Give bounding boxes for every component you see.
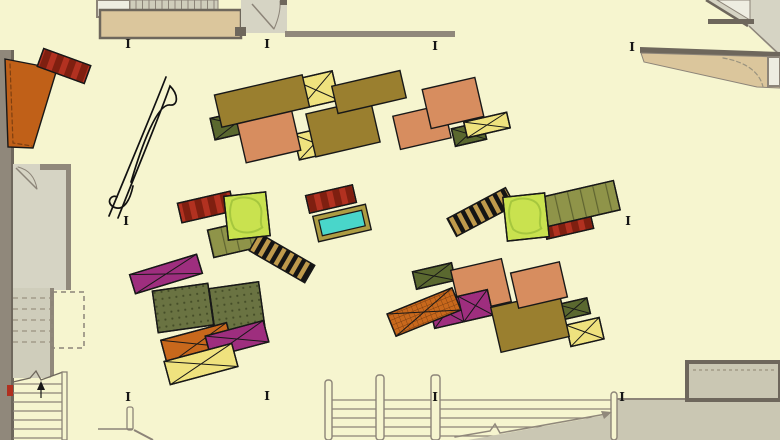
balustrade-1 — [325, 380, 332, 440]
yellow-crate-e[interactable] — [566, 317, 604, 346]
wall-stub-top-b — [280, 0, 287, 5]
stair-rail-left — [62, 372, 67, 440]
floor-plan-canvas: IIIIIIIIII — [0, 0, 780, 440]
section-marker: I — [629, 40, 635, 54]
green-crate-c[interactable] — [412, 263, 455, 290]
section-marker: I — [619, 390, 625, 404]
floor-plan: IIIIIIIIII — [0, 0, 780, 440]
sketch-stroke — [118, 86, 176, 218]
stripe-walk-a[interactable] — [249, 233, 314, 282]
pen-sketch — [109, 77, 176, 218]
section-marker: I — [625, 214, 631, 228]
wall-stub-top-a — [235, 27, 246, 36]
elevator-box-right — [768, 57, 780, 86]
up-arrow-head — [37, 381, 45, 390]
section-marker: I — [125, 390, 131, 404]
diag-line-bottomleft — [134, 430, 153, 440]
red-accent-wall — [7, 385, 13, 396]
section-marker: I — [125, 37, 131, 51]
solid-treads-left — [13, 384, 63, 438]
hatch-orange-crate[interactable] — [387, 288, 461, 336]
olive-table-c[interactable] — [332, 70, 407, 113]
section-marker: I — [432, 39, 438, 53]
dotted-green-a[interactable] — [152, 283, 213, 332]
wall-bar-topright — [708, 19, 754, 24]
lower-slab — [468, 399, 780, 440]
post-bottomleft — [127, 407, 133, 430]
stair-room-lower-left — [13, 288, 51, 378]
room-bottomright — [687, 362, 780, 400]
section-marker: I — [264, 37, 270, 51]
furniture-layer — [5, 49, 620, 385]
dashed-outline — [52, 292, 84, 348]
structure-layer — [0, 0, 780, 440]
top-wall-bar — [285, 31, 455, 37]
balustrade-2 — [376, 375, 384, 440]
section-marker: I — [264, 389, 270, 403]
left-room — [13, 164, 66, 290]
left-room-stub — [40, 164, 71, 170]
section-marker: I — [123, 214, 129, 228]
sketch-stroke — [109, 77, 166, 216]
lime-seat-a[interactable] — [224, 192, 270, 240]
lime-seat-b[interactable] — [503, 193, 549, 241]
section-marker: I — [432, 390, 438, 404]
balustrade-3 — [431, 375, 440, 440]
left-room-wall — [66, 166, 71, 290]
landing-slab-topleft — [100, 10, 241, 38]
balustrade-4 — [611, 392, 617, 440]
ramp-wedge — [641, 53, 780, 88]
